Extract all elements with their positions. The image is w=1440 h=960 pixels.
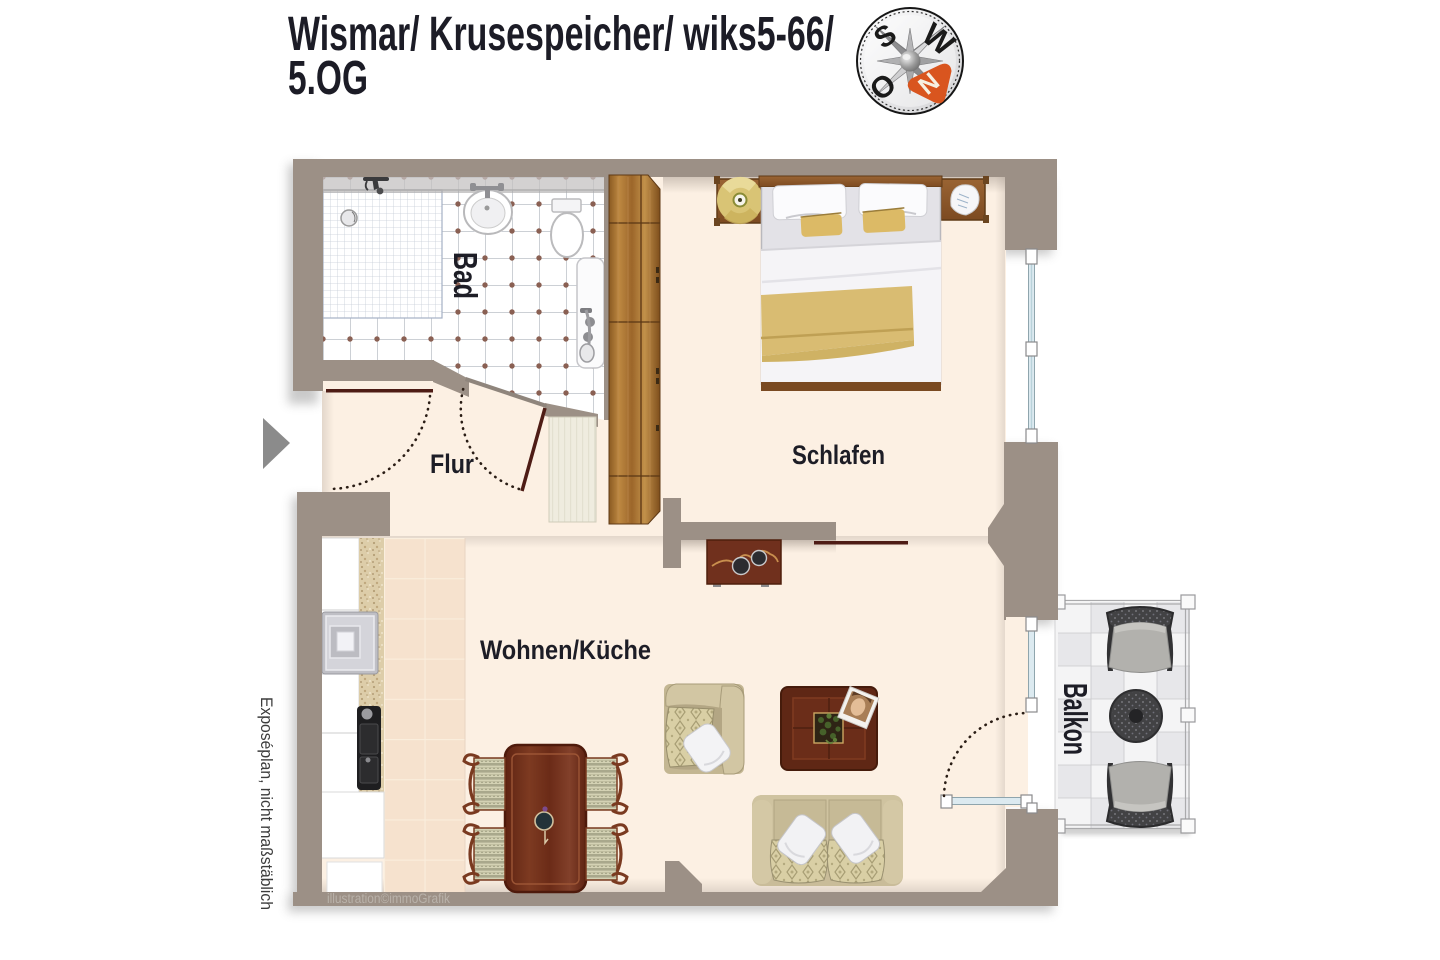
svg-text:Flur: Flur bbox=[430, 449, 474, 479]
svg-text:Schlafen: Schlafen bbox=[792, 440, 885, 470]
svg-text:Exposéplan, nicht maßstäblich: Exposéplan, nicht maßstäblich bbox=[257, 697, 275, 910]
svg-text:Bad: Bad bbox=[447, 252, 484, 299]
svg-text:Wohnen/Küche: Wohnen/Küche bbox=[480, 635, 651, 665]
svg-text:illustration©immoGrafik: illustration©immoGrafik bbox=[327, 891, 450, 906]
svg-text:Balkon: Balkon bbox=[1057, 683, 1094, 755]
svg-text:5.OG: 5.OG bbox=[288, 52, 368, 105]
svg-text:Wismar/ Krusespeicher/ wiks5-6: Wismar/ Krusespeicher/ wiks5-66/ bbox=[288, 8, 834, 61]
